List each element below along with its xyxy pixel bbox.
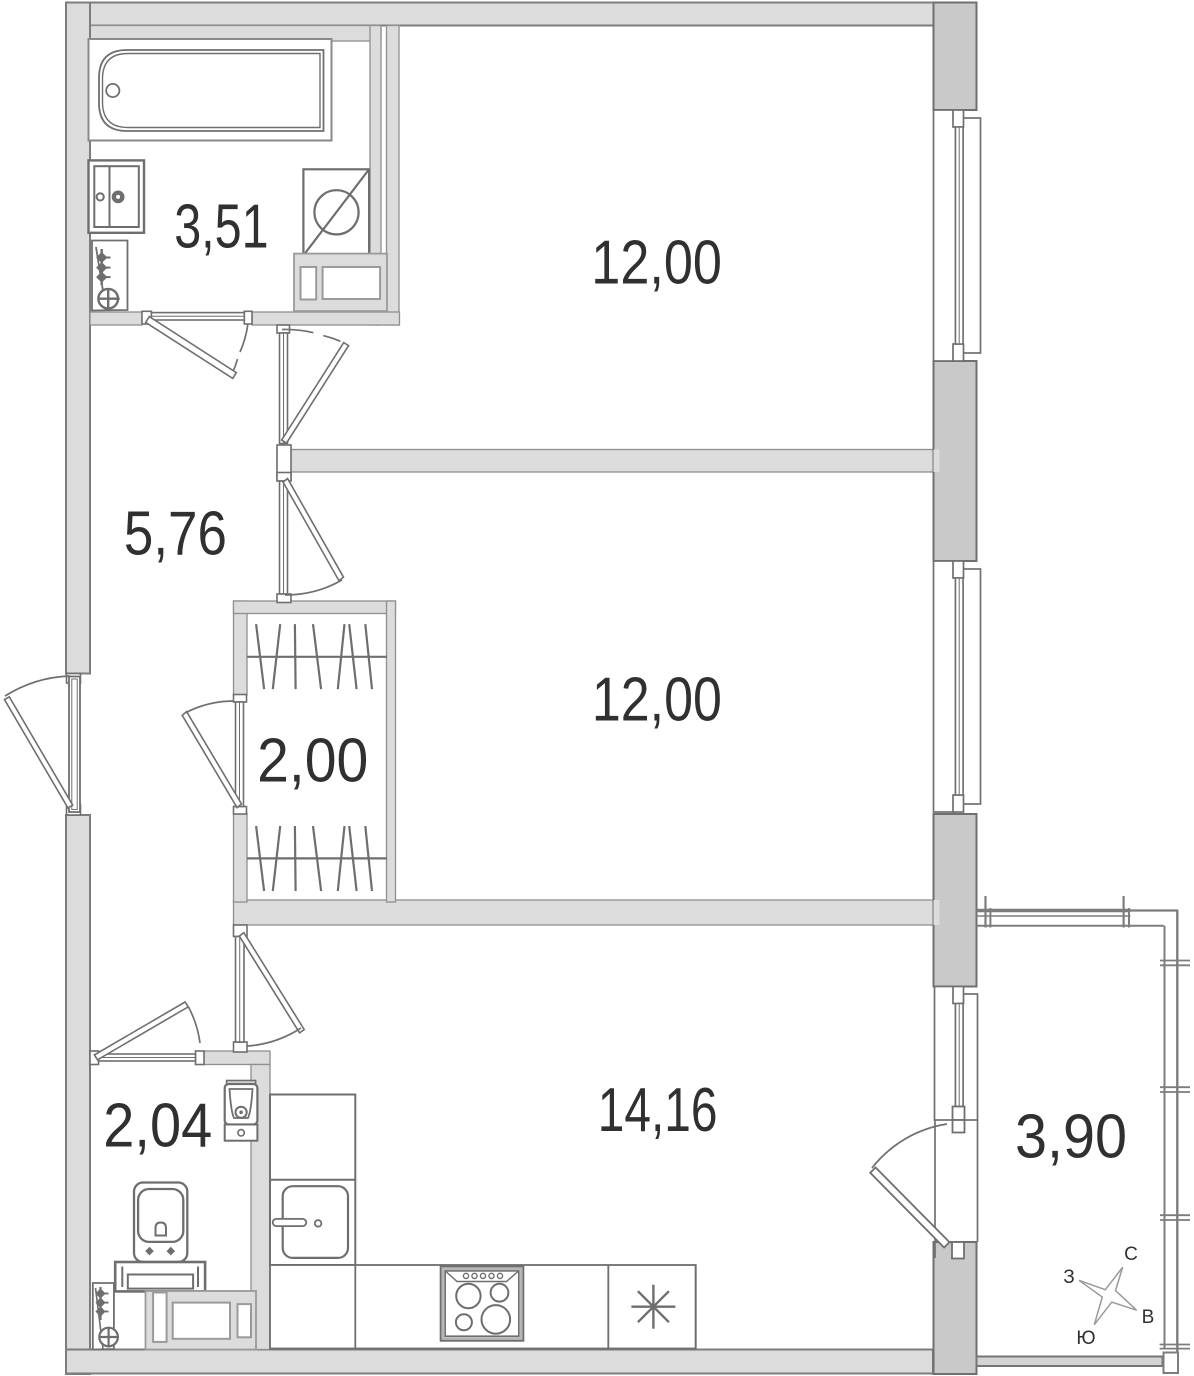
- svg-text:12,00: 12,00: [591, 229, 722, 298]
- svg-text:З: З: [1063, 1267, 1074, 1288]
- svg-text:2,04: 2,04: [103, 1092, 212, 1161]
- svg-text:В: В: [1142, 1307, 1155, 1328]
- svg-text:3,90: 3,90: [1015, 1103, 1127, 1172]
- svg-text:5,76: 5,76: [124, 499, 227, 568]
- svg-text:С: С: [1124, 1244, 1138, 1265]
- svg-text:2,00: 2,00: [257, 727, 368, 796]
- svg-text:Ю: Ю: [1076, 1328, 1095, 1349]
- svg-text:12,00: 12,00: [592, 666, 722, 735]
- svg-text:14,16: 14,16: [598, 1076, 718, 1145]
- svg-text:3,51: 3,51: [174, 193, 268, 262]
